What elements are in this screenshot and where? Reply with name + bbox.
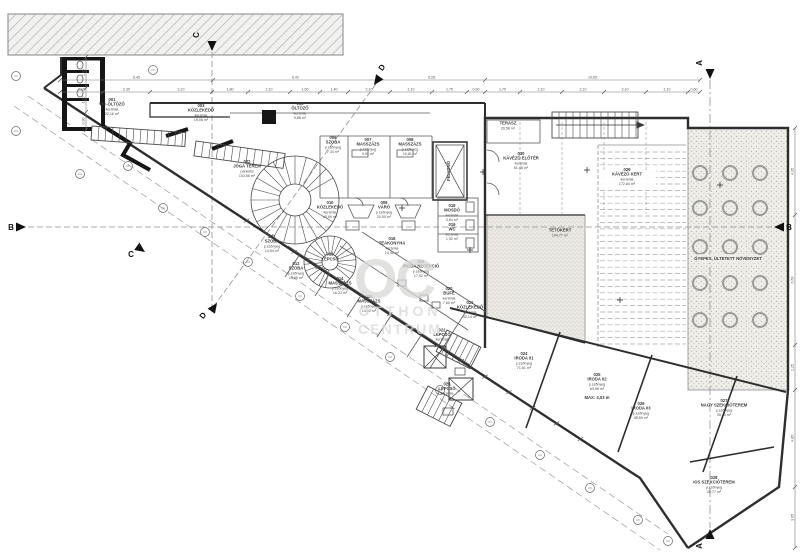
watermark-line1: OTTHON <box>358 303 441 319</box>
svg-text:2,35: 2,35 <box>123 87 130 91</box>
room-label: 027NAGY SZEKCIÓTEREMp.szőnyeg35,40 m² <box>701 398 748 417</box>
svg-text:5,28: 5,28 <box>428 75 435 79</box>
svg-text:1,80: 1,80 <box>227 87 234 91</box>
svg-text:2,10: 2,10 <box>580 87 587 91</box>
neighbour-building-hatch <box>8 14 343 55</box>
svg-text:2,10: 2,10 <box>664 87 671 91</box>
svg-text:10,65: 10,65 <box>588 75 597 79</box>
room-label: 030KÁVÉZÓ ELŐTÉRkerámia61,46 m² <box>503 151 539 170</box>
svg-text:1,20: 1,20 <box>81 97 85 104</box>
room-label: 019WCkerámia1,92 m² <box>446 222 459 241</box>
room-label: 024IRODA 01p.szőnyeg71,81 m² <box>514 351 534 370</box>
svg-text:1,50: 1,50 <box>302 87 309 91</box>
svg-text:8,45: 8,45 <box>133 75 140 79</box>
svg-text:0,90: 0,90 <box>81 118 85 125</box>
room-label: 008MASSZÁZSp.szőnyeg10,81 m² <box>398 137 421 156</box>
watermark-line2: CENTRUM <box>358 321 442 337</box>
svg-text:2,10: 2,10 <box>408 87 415 91</box>
svg-text:2,10: 2,10 <box>622 87 629 91</box>
section-marker-arrow <box>208 300 221 313</box>
room-label: 006SZOBAp.szőnyeg7,34 m² <box>325 135 341 154</box>
svg-text:6,50: 6,50 <box>790 277 794 284</box>
svg-text:1,55: 1,55 <box>81 69 85 76</box>
section-marker-arrow <box>706 69 715 79</box>
room-label: 009VÁRÓp.szőnyeg20,50 m² <box>376 200 392 219</box>
svg-text:4,85: 4,85 <box>790 435 794 442</box>
svg-text:3,05: 3,05 <box>790 514 794 521</box>
section-marker-arrow <box>370 74 383 87</box>
svg-text:1,75: 1,75 <box>499 87 506 91</box>
svg-text:2,10: 2,10 <box>266 87 273 91</box>
svg-text:2,25: 2,25 <box>790 364 794 371</box>
room-label: MAX: 4,03 m <box>585 395 610 400</box>
watermark: OC OTTHON CENTRUM <box>354 247 442 337</box>
svg-text:1,75: 1,75 <box>446 87 453 91</box>
floor-plan-svg: 8,456,425,2810,652,152,353,101,802,101,5… <box>0 0 800 557</box>
svg-text:1,40: 1,40 <box>331 87 338 91</box>
section-marker-label: A <box>695 543 704 549</box>
svg-text:3,10: 3,10 <box>178 87 185 91</box>
watermark-logo: OC <box>354 247 435 310</box>
room-label: 012SZOBAp.szőnyeg16,85 m² <box>288 261 304 280</box>
room-label: 007MASSZÁZSp.szőnyeg9,91 m² <box>356 137 379 156</box>
section-marker-label: C <box>192 32 201 38</box>
spiral-stairs <box>251 156 356 288</box>
room-label: GYEPES, ÜLTETETT NÖVÉNYZET <box>694 256 762 261</box>
section-marker-label: D <box>377 62 388 72</box>
room-label: 028KIS SZEKCIÓTEREMp.szőnyeg26,77 m² <box>693 475 735 494</box>
room-label: 014MASSZÁZSp.szőnyeg16,23 m² <box>328 276 351 295</box>
floor-plan-page: 8,456,425,2810,652,152,353,101,802,101,5… <box>0 0 800 557</box>
room-label: 018MOSDÓkerámia3,84 m² <box>444 203 461 222</box>
svg-text:0,60: 0,60 <box>691 87 698 91</box>
section-marker-label: A <box>695 60 704 66</box>
room-label: 010KÖZLEKEDŐkerámia40,69 m² <box>317 200 344 219</box>
svg-text:2,10: 2,10 <box>366 87 373 91</box>
svg-text:4,35: 4,35 <box>790 168 794 175</box>
section-marker-label: C <box>128 250 134 259</box>
section-marker-label: D <box>198 310 209 320</box>
room-label: 011SZOBAp.szőnyeg14,54 m² <box>264 234 280 253</box>
room-label: 020BÜFÉkerámia7,60 m² <box>443 286 456 305</box>
section-marker-label: B <box>786 223 792 232</box>
room-label: TERASZ20,58 m² <box>500 121 517 131</box>
section-marker-label: B <box>8 223 14 232</box>
room-label: 003KÖZLEKEDŐkerámia19,06 m² <box>188 103 215 122</box>
room-label: 025IRODA 02p.szőnyeg63,96 m² <box>587 372 607 391</box>
section-marker-arrow <box>134 243 147 256</box>
svg-text:0,90: 0,90 <box>473 87 480 91</box>
svg-text:6,42: 6,42 <box>292 75 299 79</box>
svg-text:2,10: 2,10 <box>538 87 545 91</box>
section-marker-arrow <box>16 223 26 232</box>
roof-garden-hatch <box>487 215 585 343</box>
room-label: FELVONÓ <box>446 160 451 181</box>
svg-text:2,15: 2,15 <box>78 87 85 91</box>
room-label: 023LÉPCSŐkerámia <box>438 381 456 395</box>
